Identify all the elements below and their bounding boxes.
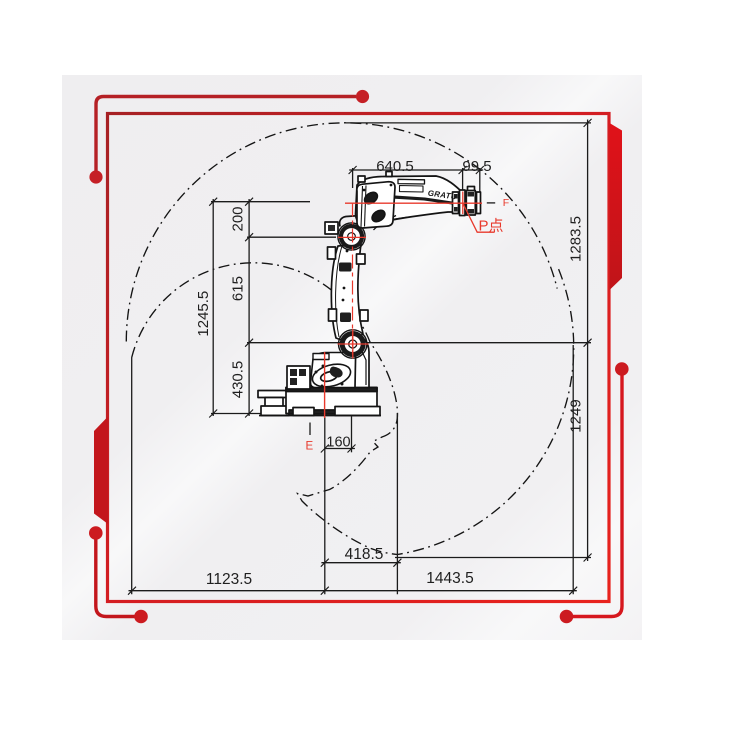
svg-text:1123.5: 1123.5 — [206, 571, 252, 588]
svg-text:F: F — [503, 197, 509, 209]
svg-text:P点: P点 — [479, 218, 504, 235]
svg-text:615: 615 — [230, 276, 247, 301]
svg-text:418.5: 418.5 — [345, 546, 384, 563]
svg-text:1283.5: 1283.5 — [568, 216, 585, 262]
svg-text:1249: 1249 — [568, 399, 585, 432]
svg-text:160: 160 — [326, 435, 350, 451]
svg-text:640.5: 640.5 — [376, 158, 414, 175]
svg-text:1245.5: 1245.5 — [195, 291, 212, 337]
svg-text:430.5: 430.5 — [230, 361, 247, 399]
svg-text:1443.5: 1443.5 — [426, 570, 473, 587]
svg-text:E: E — [306, 441, 314, 453]
svg-text:200: 200 — [230, 206, 247, 231]
svg-text:99.5: 99.5 — [462, 158, 491, 175]
